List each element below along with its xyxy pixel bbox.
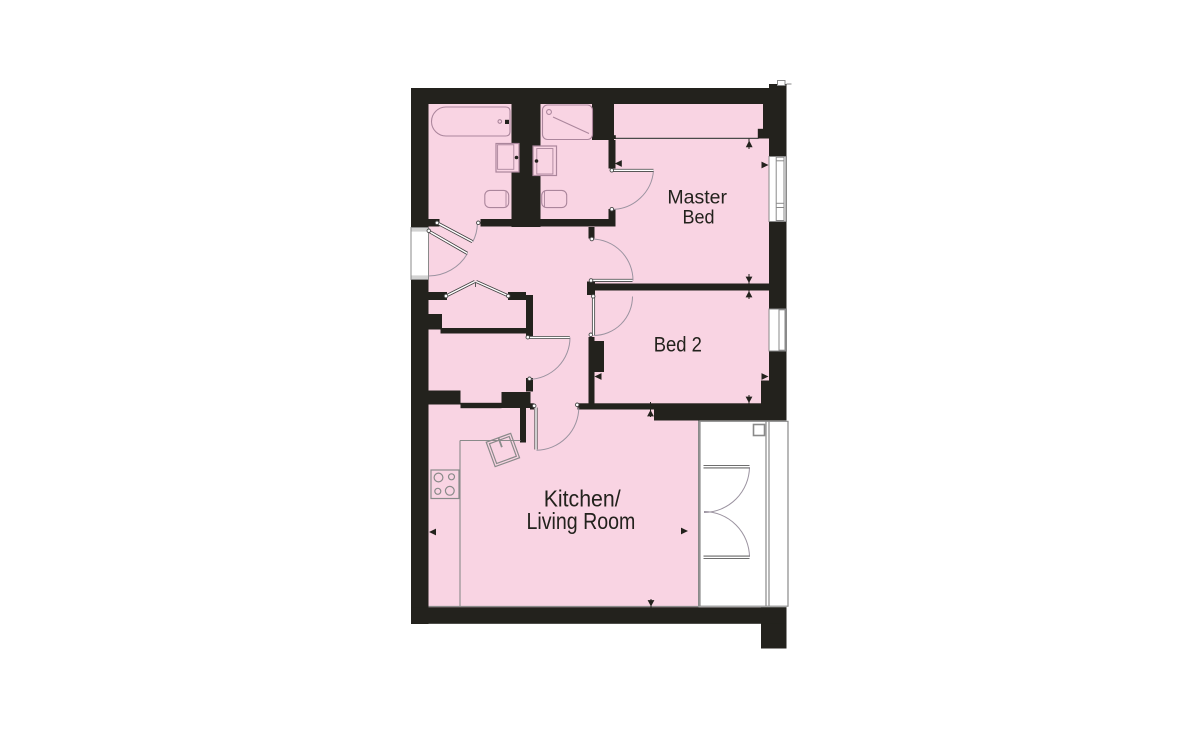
svg-text:Bed 2: Bed 2	[654, 333, 702, 356]
svg-text:Master: Master	[667, 187, 727, 208]
svg-text:Living Room: Living Room	[526, 508, 635, 534]
svg-text:Bed: Bed	[683, 207, 715, 228]
